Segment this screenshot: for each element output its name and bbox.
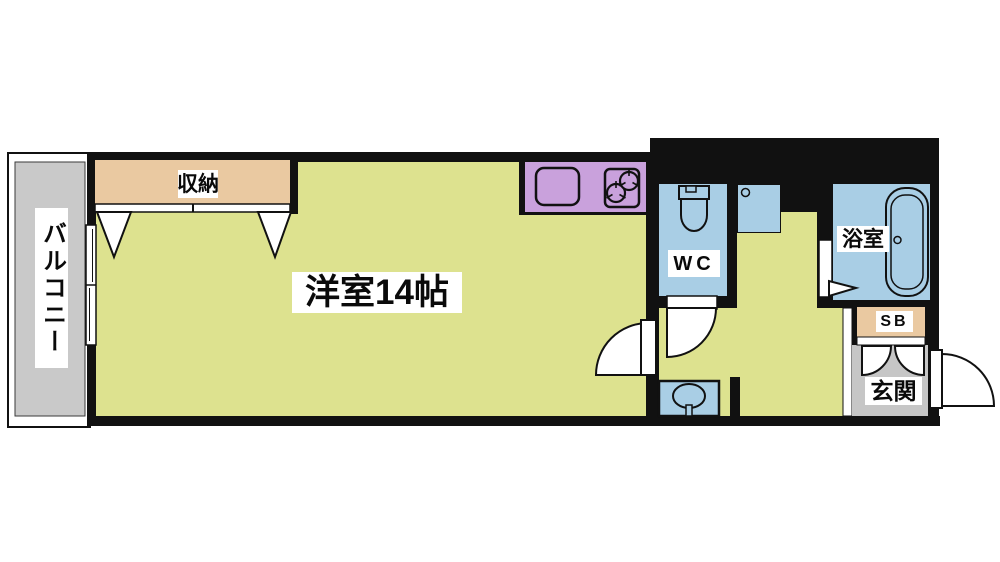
front-door-leaf (930, 350, 942, 408)
bathtub-icon (886, 188, 928, 296)
washer-tap-icon (742, 189, 750, 197)
shoebox-door-track (857, 337, 925, 345)
shoebox-label: SB (876, 311, 913, 332)
hallway-floor (781, 212, 817, 308)
wall-bottom (87, 416, 940, 426)
balcony-label: バルコニー (35, 208, 68, 368)
bathroom-label: 浴室 (837, 226, 889, 252)
room-door-leaf (641, 320, 656, 375)
front-door-swing-arc (942, 354, 994, 406)
closet-label: 収納 (178, 170, 218, 198)
kitchen-sink-icon (536, 168, 579, 205)
wc-label: WC (668, 250, 720, 277)
toilet-icon (679, 186, 709, 231)
entrance-label: 玄関 (865, 377, 922, 405)
hallway-floor (737, 233, 781, 308)
floor-plan-drawing (0, 0, 1000, 562)
wall-hallway-stub (730, 377, 740, 417)
floor-plan: バルコニー 収納 洋室14帖 WC 浴室 SB 玄関 (0, 0, 1000, 562)
main-room-label: 洋室14帖 (292, 272, 462, 313)
entrance-step (843, 308, 852, 416)
washbasin-tap-icon (686, 405, 692, 416)
